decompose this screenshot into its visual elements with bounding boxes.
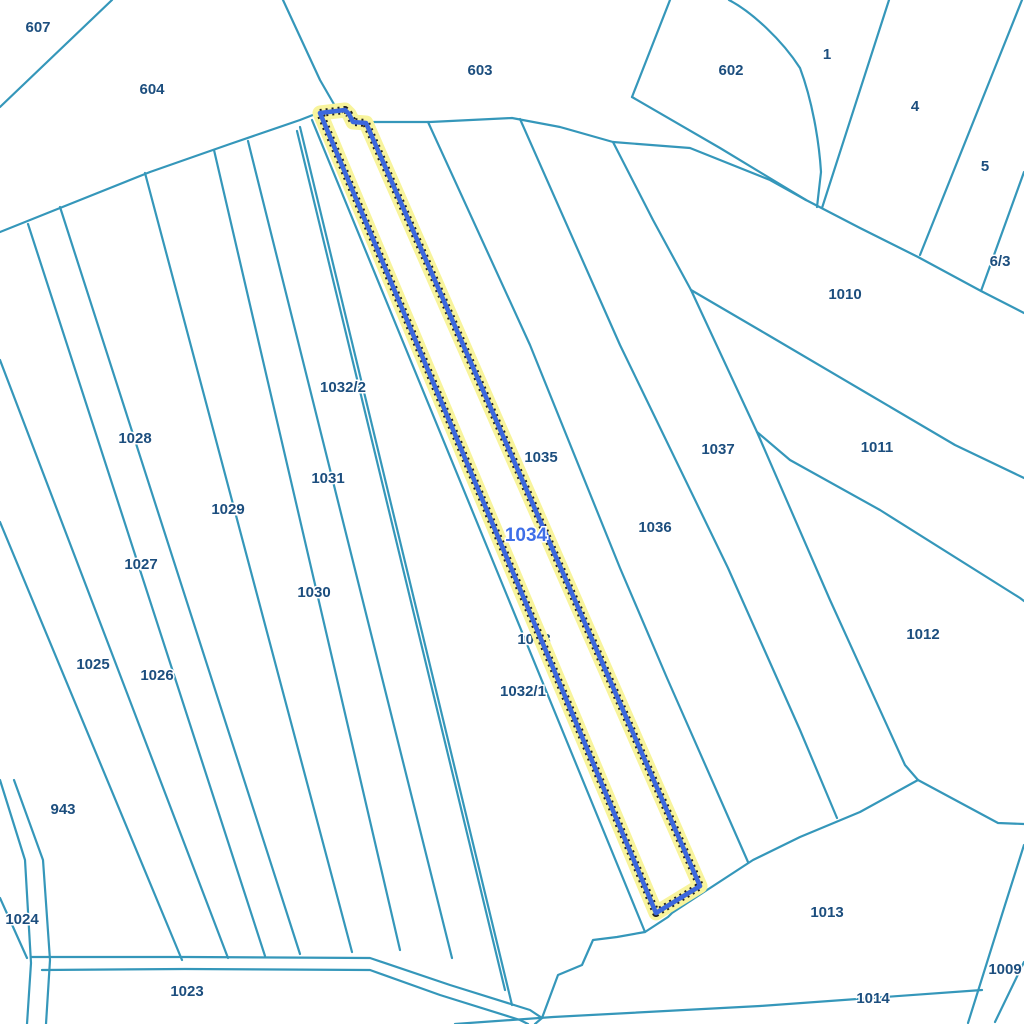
boundary-line [312, 120, 645, 932]
parcel-label-1027: 1027 [124, 556, 157, 573]
boundary-line [613, 142, 918, 780]
parcel-label-1037: 1037 [701, 441, 734, 458]
boundary-line [918, 780, 1024, 824]
boundary-line [981, 172, 1024, 291]
parcel-label-4: 4 [911, 98, 920, 115]
parcel-label-6-3: 6/3 [990, 253, 1011, 270]
parcel-label-1031: 1031 [311, 470, 344, 487]
boundary-line [822, 0, 889, 208]
boundary-line [632, 97, 806, 200]
parcel-label-1026: 1026 [140, 667, 173, 684]
parcel-boundary-lines [0, 0, 1024, 1024]
boundary-line [60, 207, 300, 954]
parcel-label-1035: 1035 [524, 449, 557, 466]
boundary-line [632, 0, 670, 97]
parcel-label-1011: 1011 [861, 439, 894, 456]
map-viewport[interactable]: 1033 6076046036021456/310101011103710281… [0, 0, 1024, 1024]
parcel-label-1: 1 [823, 46, 831, 63]
parcel-label-1014: 1014 [856, 990, 890, 1007]
road-line [968, 845, 1024, 1023]
boundary-line [0, 360, 228, 958]
road-line [42, 969, 528, 1024]
parcel-label-943: 943 [50, 801, 75, 818]
boundary-line [214, 150, 400, 950]
selected-parcel-halo [320, 110, 700, 913]
selected-parcel-1034[interactable] [320, 110, 700, 913]
parcel-label-1030: 1030 [297, 584, 330, 601]
selected-parcel-label[interactable]: 1034 [505, 525, 548, 546]
boundary-line [757, 432, 1024, 601]
parcel-label-1010: 1010 [828, 286, 861, 303]
parcel-label-603: 603 [467, 62, 492, 79]
parcel-label-602: 602 [718, 62, 743, 79]
parcel-label-1025: 1025 [76, 656, 109, 673]
parcel-label-1009: 1009 [988, 961, 1021, 978]
boundary-line [0, 113, 318, 232]
parcel-label-607: 607 [25, 19, 50, 36]
boundary-line [368, 118, 1024, 313]
parcel-label-1029: 1029 [211, 501, 244, 518]
boundary-line [535, 780, 918, 1024]
parcel-label-1028: 1028 [118, 430, 151, 447]
cadastral-map-canvas[interactable]: 1033 6076046036021456/310101011103710281… [0, 0, 1024, 1024]
road-line [14, 780, 50, 1024]
parcel-label-1012: 1012 [906, 626, 939, 643]
road-line [31, 957, 542, 1018]
parcel-label-1032-2: 1032/2 [320, 379, 366, 396]
boundary-line [691, 290, 1024, 478]
boundary-line [145, 173, 352, 952]
parcel-label-1024: 1024 [5, 911, 39, 928]
boundary-line [455, 990, 982, 1024]
parcel-label-1023: 1023 [170, 983, 203, 1000]
parcel-label-5: 5 [981, 158, 989, 175]
parcel-label-1013: 1013 [810, 904, 843, 921]
parcel-label-1032-1: 1032/1 [500, 683, 546, 700]
parcel-label-1036: 1036 [638, 519, 671, 536]
road-line [0, 898, 27, 958]
boundary-line [0, 0, 112, 107]
parcel-label-604: 604 [139, 81, 165, 98]
boundary-line [729, 0, 821, 207]
boundary-line [283, 0, 335, 106]
boundary-line [28, 224, 265, 956]
